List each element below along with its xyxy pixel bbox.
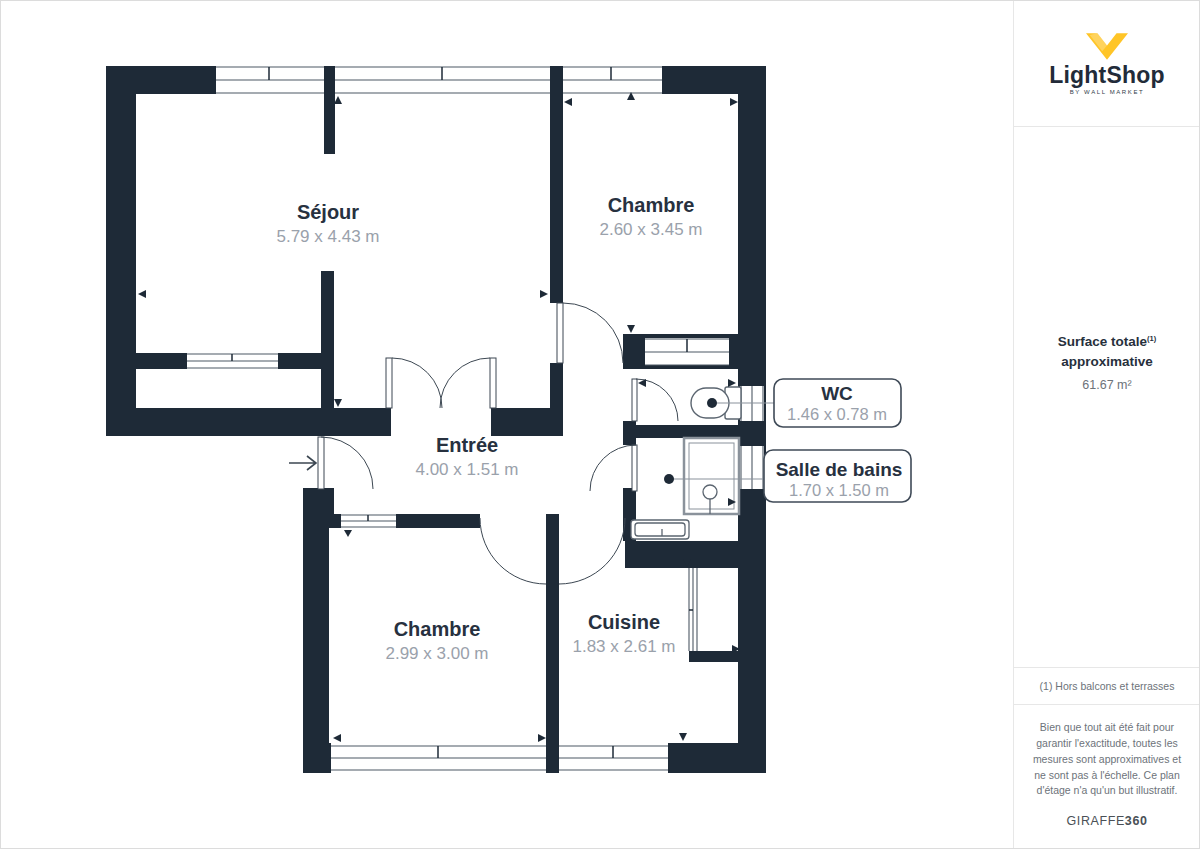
room-dims-chambre2: 2.99 x 3.00 m	[385, 644, 488, 663]
giraffe360-brand-bold: 360	[1125, 814, 1148, 828]
entrance-arrow-icon	[289, 456, 316, 470]
fixtures	[631, 387, 741, 539]
surface-total-block: Surface totale(1) approximative 61.67 m²	[1014, 127, 1200, 667]
room-dims-sejour: 5.79 x 4.43 m	[276, 227, 379, 246]
room-label-sdb: Salle de bains	[776, 459, 903, 480]
disclaimer-block: Bien que tout ait été fait pour garantir…	[1014, 705, 1200, 849]
walls	[106, 66, 766, 773]
info-sidebar: LightShop BY WALL MARKET Surface totale(…	[1013, 1, 1200, 849]
room-label-chambre1: Chambre	[608, 194, 695, 216]
wc-leader-dot	[707, 398, 717, 408]
wc-door-arc	[636, 379, 678, 421]
room-dims-sdb: 1.70 x 1.50 m	[789, 481, 889, 499]
lightshop-logo-subtext: BY WALL MARKET	[1070, 89, 1145, 95]
room-dims-wc: 1.46 x 0.78 m	[787, 405, 887, 423]
french-door-left-arc	[392, 358, 442, 408]
giraffe360-brand-regular: GIRAFFE	[1066, 814, 1124, 828]
entry-door-arc	[321, 437, 373, 489]
logo-block: LightShop BY WALL MARKET	[1014, 1, 1200, 127]
cuisine-door-arc	[559, 518, 625, 584]
room-label-sejour: Séjour	[297, 201, 359, 223]
lightshop-logo-text: LightShop	[1049, 64, 1165, 87]
room-dims-cuisine: 1.83 x 2.61 m	[572, 637, 675, 656]
room-dims-entree: 4.00 x 1.51 m	[415, 460, 518, 479]
footnote: (1) Hors balcons et terrasses	[1014, 667, 1200, 705]
surface-title-sup: (1)	[1147, 334, 1156, 343]
floorplan-page: Séjour 5.79 x 4.43 m Chambre 2.60 x 3.45…	[0, 0, 1200, 849]
sdb-door-arc	[590, 445, 636, 491]
surface-total-title: Surface totale(1) approximative	[1014, 332, 1200, 371]
surface-title-line2: approximative	[1061, 354, 1153, 369]
chambre2-door-arc	[480, 518, 546, 584]
surface-title-line1: Surface totale	[1058, 334, 1147, 349]
room-label-wc: WC	[821, 383, 853, 404]
room-dims-chambre1: 2.60 x 3.45 m	[599, 220, 702, 239]
room-label-entree: Entrée	[436, 434, 498, 456]
sink-fixture	[631, 520, 689, 539]
french-door-right-arc	[440, 358, 490, 408]
sdb-leader-dot	[664, 474, 674, 484]
surface-total-value: 61.67 m²	[1014, 378, 1200, 392]
room-label-cuisine: Cuisine	[588, 611, 660, 633]
disclaimer-text: Bien que tout ait été fait pour garantir…	[1030, 720, 1184, 799]
lightshop-logo-icon	[1086, 33, 1128, 60]
chambre1-door-arc	[563, 303, 623, 363]
giraffe360-brand: GIRAFFE360	[1030, 814, 1184, 828]
room-label-chambre2: Chambre	[394, 618, 481, 640]
